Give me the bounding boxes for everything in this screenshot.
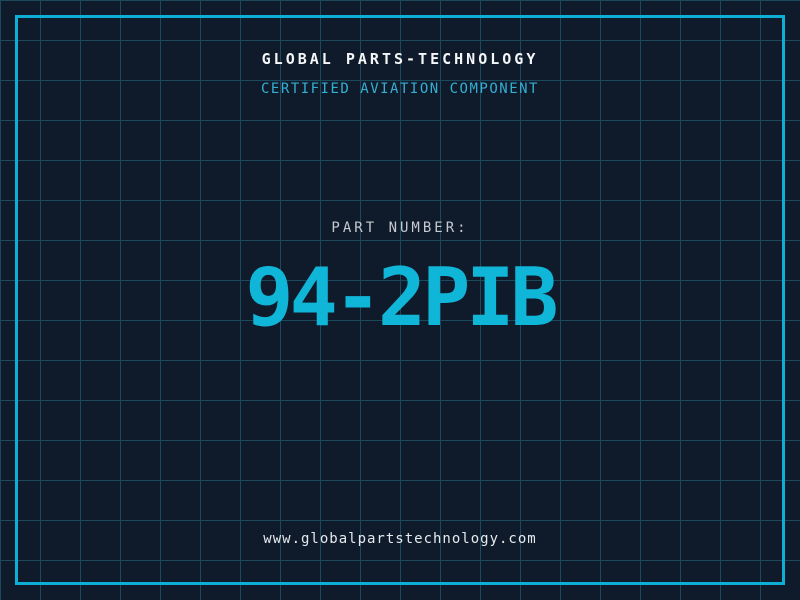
part-number-label: PART NUMBER:: [0, 220, 800, 236]
certificate-card: GLOBAL PARTS-TECHNOLOGY CERTIFIED AVIATI…: [0, 0, 800, 600]
certification-subtitle: CERTIFIED AVIATION COMPONENT: [0, 81, 800, 97]
company-title: GLOBAL PARTS-TECHNOLOGY: [0, 50, 800, 68]
part-number-value: 94-2PIB: [0, 258, 800, 338]
website-url: www.globalpartstechnology.com: [0, 531, 800, 547]
